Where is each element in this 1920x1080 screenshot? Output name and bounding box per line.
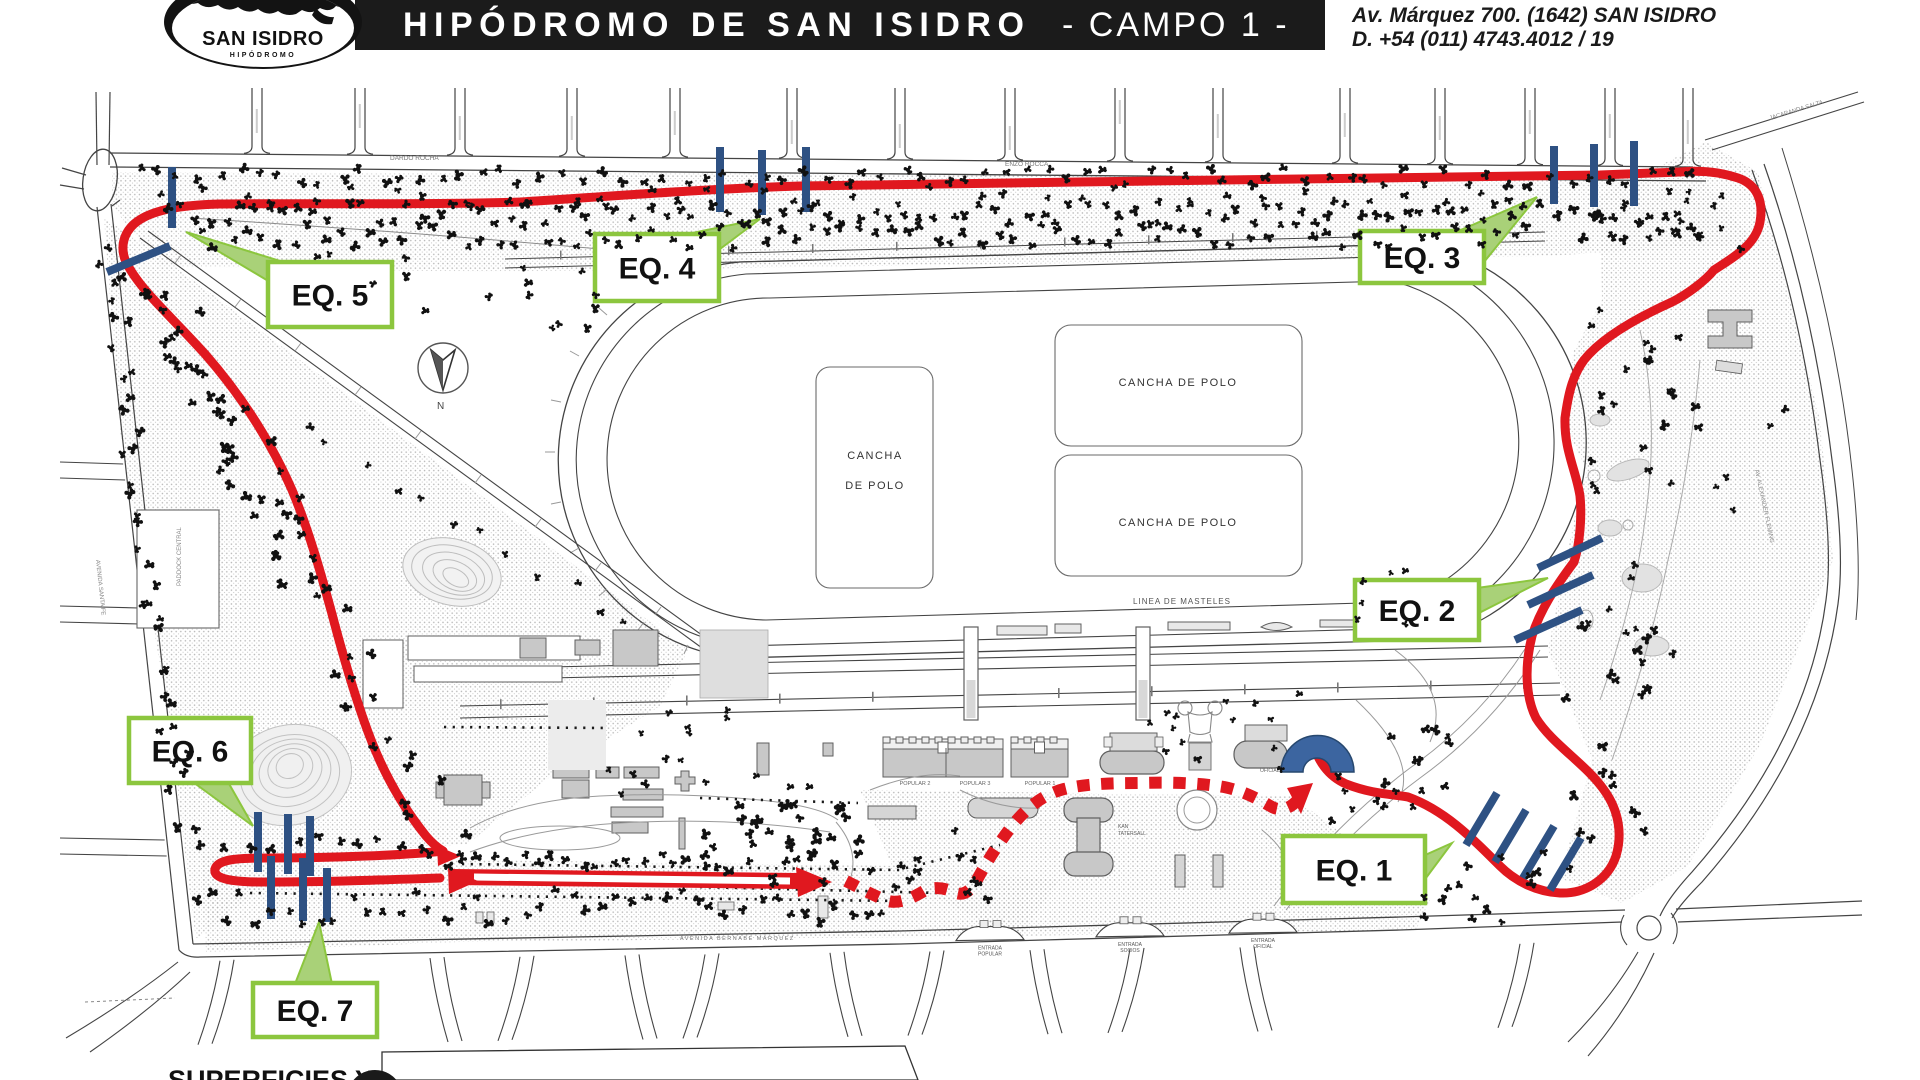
svg-text:CANCHA DE POLO: CANCHA DE POLO [1119,377,1238,389]
svg-text:SOCIOS: SOCIOS [1120,948,1140,954]
svg-text:DARDO ROCHA: DARDO ROCHA [390,155,439,162]
svg-text:POPULAR 1: POPULAR 1 [1025,781,1056,787]
svg-text:DE POLO: DE POLO [845,480,904,492]
svg-text:AVENIDA BERNABE MARQUEZ: AVENIDA BERNABE MARQUEZ [680,936,795,942]
svg-text:N: N [437,401,444,412]
svg-text:EQ. 1: EQ. 1 [1316,855,1393,888]
svg-text:SUPERFICIES Y: SUPERFICIES Y [168,1065,373,1080]
svg-text:OFICIAL: OFICIAL [1253,944,1273,950]
svg-text:EQ. 3: EQ. 3 [1384,242,1461,275]
svg-text:EQ. 5: EQ. 5 [292,280,369,313]
svg-text:EQ. 7: EQ. 7 [277,995,354,1028]
svg-text:SAN ISIDRO: SAN ISIDRO [202,28,324,50]
svg-text:OFICIAL: OFICIAL [1260,768,1280,774]
svg-text:- CAMPO 1 -: - CAMPO 1 - [1062,6,1290,44]
svg-text:HIPÓDROMO: HIPÓDROMO [230,50,296,59]
svg-text:LINEA DE MASTELES: LINEA DE MASTELES [1133,597,1231,606]
svg-text:KAN: KAN [1118,824,1129,830]
svg-text:CANCHA DE POLO: CANCHA DE POLO [1119,517,1238,529]
svg-text:POPULAR 3: POPULAR 3 [960,781,991,787]
svg-text:ENZO ROCCA: ENZO ROCCA [1005,161,1049,168]
svg-text:EQ. 2: EQ. 2 [1379,595,1456,628]
svg-text:POPULAR 2: POPULAR 2 [900,781,931,787]
svg-text:POPULAR: POPULAR [978,952,1002,958]
svg-text:Av. Márquez 700. (1642) SAN IS: Av. Márquez 700. (1642) SAN ISIDRO [1351,4,1716,27]
svg-text:HIPÓDROMO DE SAN ISIDRO: HIPÓDROMO DE SAN ISIDRO [403,6,1030,44]
svg-text:CANCHA: CANCHA [847,450,902,462]
svg-text:PADDOCK CENTRAL: PADDOCK CENTRAL [177,526,183,586]
svg-text:TATERSALL: TATERSALL [1118,831,1146,837]
svg-text:EQ. 4: EQ. 4 [619,253,696,286]
svg-text:D. +54 (011) 4743.4012 / 19: D. +54 (011) 4743.4012 / 19 [1352,28,1614,51]
